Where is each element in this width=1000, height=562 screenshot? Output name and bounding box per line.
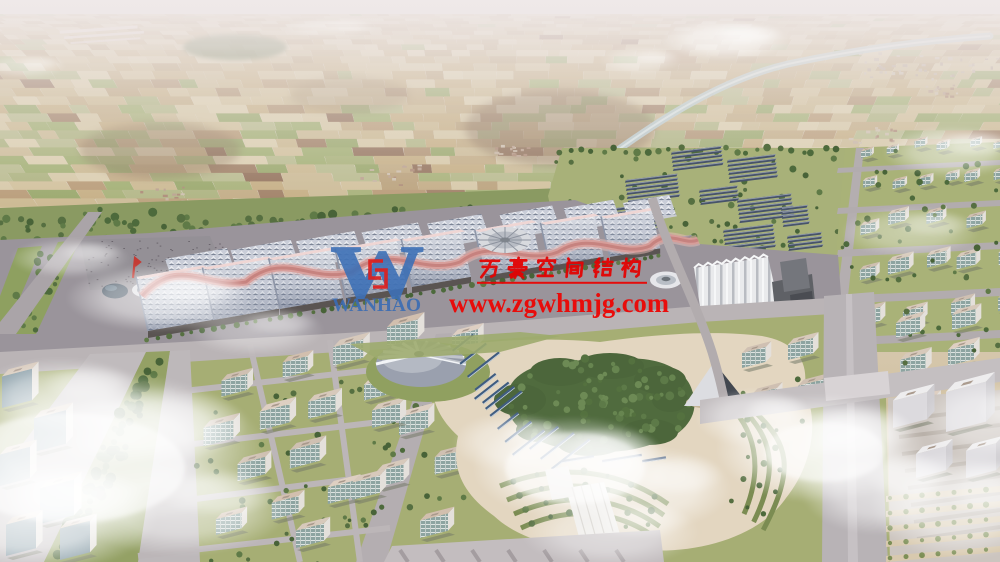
svg-text:WANHAO: WANHAO: [332, 295, 421, 316]
svg-text:www.zgwhmjg.com: www.zgwhmjg.com: [449, 288, 669, 318]
